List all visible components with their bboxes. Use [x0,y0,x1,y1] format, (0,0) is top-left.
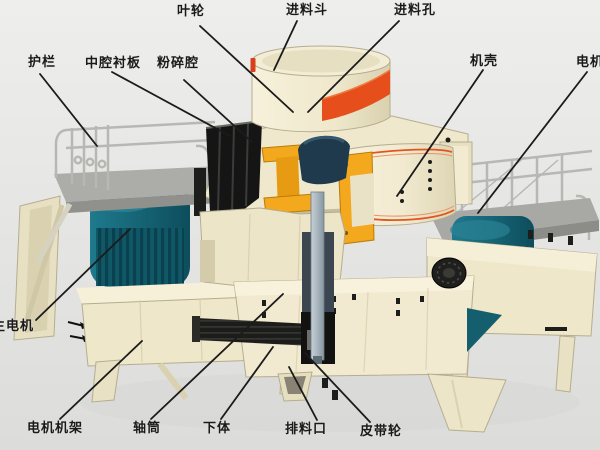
feed-hole-opening [262,50,380,73]
shaft-tube-shape [311,192,324,364]
machine-illustration [0,0,600,450]
left-support-legs [14,196,62,340]
inspection-flange [432,258,466,288]
feed-hopper-shape [251,46,391,132]
discharge-port-shape [278,372,312,401]
rotor-cap [298,136,350,184]
diagram-canvas: 叶轮进料斗进料孔护栏中腔衬板粉碎腔机壳电机主电机电机机架轴筒下体排料口皮带轮 [0,0,600,450]
